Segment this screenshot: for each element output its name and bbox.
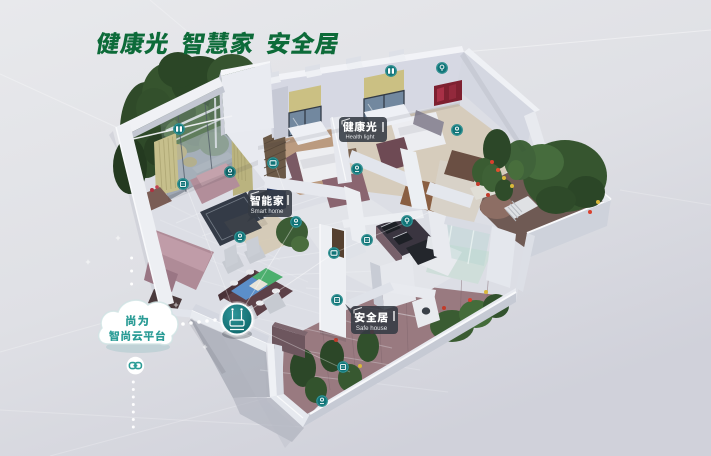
svg-text:Smart home: Smart home bbox=[251, 209, 284, 215]
svg-text:Health light: Health light bbox=[345, 134, 374, 140]
svg-text:Safe house: Safe house bbox=[356, 325, 388, 332]
